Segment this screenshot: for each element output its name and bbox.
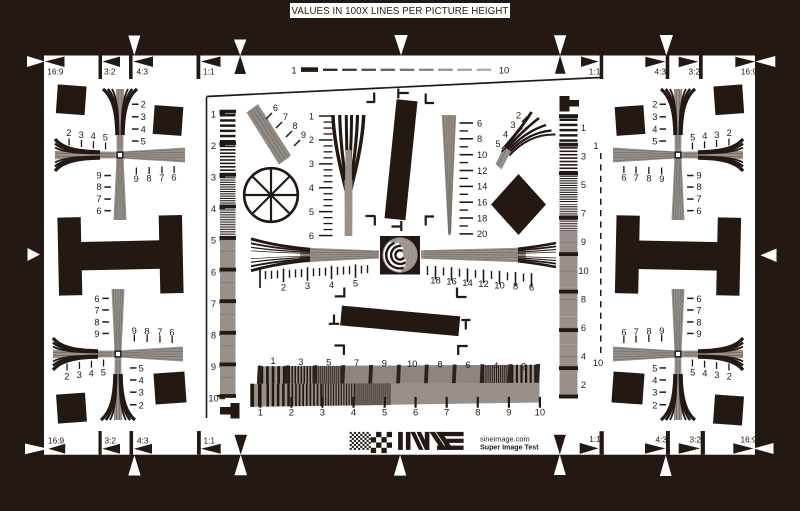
svg-text:8: 8 xyxy=(581,294,586,304)
svg-text:2: 2 xyxy=(289,406,294,417)
svg-text:4: 4 xyxy=(503,129,508,139)
svg-text:8: 8 xyxy=(696,182,701,192)
svg-text:5: 5 xyxy=(382,406,387,417)
svg-text:6: 6 xyxy=(696,294,701,304)
svg-text:3: 3 xyxy=(77,370,82,380)
svg-text:4: 4 xyxy=(702,131,707,141)
svg-text:3: 3 xyxy=(320,406,325,417)
svg-text:7: 7 xyxy=(696,194,701,204)
svg-text:5: 5 xyxy=(495,139,500,149)
svg-text:2: 2 xyxy=(581,380,586,390)
svg-text:7: 7 xyxy=(94,306,99,316)
svg-text:8: 8 xyxy=(477,134,482,144)
svg-text:3: 3 xyxy=(298,356,303,367)
svg-text:7: 7 xyxy=(634,173,639,183)
svg-text:2: 2 xyxy=(516,110,521,120)
svg-text:10: 10 xyxy=(578,266,588,276)
svg-text:9: 9 xyxy=(696,171,701,181)
svg-text:8: 8 xyxy=(96,182,101,192)
svg-text:5: 5 xyxy=(309,207,314,217)
svg-text:5: 5 xyxy=(101,367,106,377)
svg-text:6: 6 xyxy=(465,359,470,370)
svg-text:6: 6 xyxy=(171,172,176,182)
svg-text:5: 5 xyxy=(690,132,695,142)
svg-text:2: 2 xyxy=(727,128,732,138)
svg-text:3: 3 xyxy=(141,112,146,122)
svg-text:14: 14 xyxy=(477,182,487,192)
svg-text:3:2: 3:2 xyxy=(105,435,117,445)
svg-text:16:9: 16:9 xyxy=(741,435,758,445)
svg-text:18: 18 xyxy=(477,213,487,223)
svg-text:7: 7 xyxy=(96,194,101,204)
svg-text:12: 12 xyxy=(477,166,487,176)
svg-text:18: 18 xyxy=(430,276,441,287)
svg-text:3: 3 xyxy=(79,130,84,140)
svg-text:2: 2 xyxy=(652,400,657,410)
svg-text:6: 6 xyxy=(96,206,101,216)
svg-text:5: 5 xyxy=(652,136,657,146)
svg-text:6: 6 xyxy=(94,294,99,304)
svg-text:4: 4 xyxy=(309,183,314,193)
svg-text:3: 3 xyxy=(652,388,657,398)
svg-text:3: 3 xyxy=(305,281,310,292)
svg-text:20: 20 xyxy=(477,229,487,239)
svg-text:7: 7 xyxy=(159,173,164,183)
svg-text:5: 5 xyxy=(326,356,331,367)
svg-text:9: 9 xyxy=(382,358,387,369)
svg-text:5: 5 xyxy=(652,364,657,374)
svg-text:Super Image Test: Super Image Test xyxy=(480,444,539,452)
svg-text:1: 1 xyxy=(581,123,586,133)
svg-text:sineimage.com: sineimage.com xyxy=(480,435,530,444)
svg-text:4: 4 xyxy=(351,406,356,417)
svg-text:5: 5 xyxy=(141,136,146,146)
svg-text:5: 5 xyxy=(353,278,358,289)
svg-text:2: 2 xyxy=(141,100,146,110)
svg-text:2: 2 xyxy=(281,283,286,294)
svg-text:8: 8 xyxy=(292,121,297,131)
svg-text:10: 10 xyxy=(593,358,603,368)
svg-text:16:9: 16:9 xyxy=(48,435,65,445)
svg-text:4:3: 4:3 xyxy=(655,66,667,76)
svg-text:14: 14 xyxy=(462,278,473,289)
svg-text:4: 4 xyxy=(329,280,334,291)
svg-text:2: 2 xyxy=(521,360,526,371)
svg-text:3: 3 xyxy=(714,370,719,380)
svg-text:6: 6 xyxy=(309,231,314,241)
svg-text:16:9: 16:9 xyxy=(741,66,758,76)
svg-text:9: 9 xyxy=(211,362,216,372)
svg-text:7: 7 xyxy=(444,406,449,417)
svg-text:3:2: 3:2 xyxy=(690,435,702,445)
svg-text:1:1: 1:1 xyxy=(203,66,215,76)
svg-text:10: 10 xyxy=(494,280,505,291)
svg-text:1: 1 xyxy=(270,355,275,366)
svg-text:4: 4 xyxy=(652,124,657,134)
svg-text:8: 8 xyxy=(146,173,151,183)
svg-text:4: 4 xyxy=(652,376,657,386)
svg-text:9: 9 xyxy=(696,329,701,339)
svg-text:4:3: 4:3 xyxy=(137,435,149,445)
svg-text:7: 7 xyxy=(283,112,288,122)
svg-text:3:2: 3:2 xyxy=(104,66,116,76)
svg-text:6: 6 xyxy=(273,103,278,113)
svg-text:8: 8 xyxy=(211,331,216,341)
svg-text:1: 1 xyxy=(593,141,598,151)
svg-text:6: 6 xyxy=(621,172,626,182)
svg-text:7: 7 xyxy=(581,209,586,219)
svg-text:5: 5 xyxy=(211,236,216,246)
svg-text:8: 8 xyxy=(646,173,651,183)
svg-text:2: 2 xyxy=(652,100,657,110)
svg-text:1:1: 1:1 xyxy=(589,434,601,444)
svg-text:3: 3 xyxy=(714,130,719,140)
svg-text:3: 3 xyxy=(211,173,216,183)
svg-text:7: 7 xyxy=(211,299,216,309)
svg-text:10: 10 xyxy=(499,66,510,77)
svg-text:6: 6 xyxy=(529,283,534,294)
svg-text:4: 4 xyxy=(89,369,94,379)
svg-text:10: 10 xyxy=(535,406,545,417)
svg-text:1:1: 1:1 xyxy=(589,66,601,76)
svg-text:5: 5 xyxy=(139,364,144,374)
svg-text:6: 6 xyxy=(696,206,701,216)
svg-text:4: 4 xyxy=(702,369,707,379)
svg-text:3: 3 xyxy=(510,120,515,130)
svg-text:16:9: 16:9 xyxy=(47,66,64,76)
svg-text:9: 9 xyxy=(134,174,139,184)
svg-text:4:3: 4:3 xyxy=(137,66,149,76)
svg-text:2: 2 xyxy=(139,400,144,410)
svg-text:7: 7 xyxy=(696,306,701,316)
svg-text:16: 16 xyxy=(446,277,457,288)
svg-text:1:1: 1:1 xyxy=(204,435,216,445)
svg-text:1: 1 xyxy=(291,66,296,77)
svg-text:6: 6 xyxy=(581,323,586,333)
svg-text:9: 9 xyxy=(301,130,306,140)
svg-text:4: 4 xyxy=(139,376,144,386)
svg-text:9: 9 xyxy=(94,329,99,339)
svg-text:1: 1 xyxy=(258,406,263,417)
svg-text:4:3: 4:3 xyxy=(656,435,668,445)
svg-text:5: 5 xyxy=(581,180,586,190)
svg-text:4: 4 xyxy=(91,131,96,141)
svg-text:4: 4 xyxy=(581,352,586,362)
svg-text:5: 5 xyxy=(690,367,695,377)
svg-text:9: 9 xyxy=(659,174,664,184)
svg-text:VALUES IN 100X LINES PER PICTU: VALUES IN 100X LINES PER PICTURE HEIGHT xyxy=(292,6,509,17)
svg-text:8: 8 xyxy=(696,318,701,328)
svg-text:4: 4 xyxy=(141,124,146,134)
svg-text:2: 2 xyxy=(66,128,71,138)
svg-text:16: 16 xyxy=(477,198,487,208)
svg-text:9: 9 xyxy=(96,171,101,181)
svg-text:2: 2 xyxy=(727,372,732,382)
svg-text:9: 9 xyxy=(581,237,586,247)
svg-text:3: 3 xyxy=(139,388,144,398)
svg-text:8: 8 xyxy=(513,282,518,293)
svg-text:8: 8 xyxy=(94,318,99,328)
svg-text:1: 1 xyxy=(309,111,314,121)
svg-text:4: 4 xyxy=(493,360,498,371)
svg-text:6: 6 xyxy=(211,267,216,277)
svg-text:6: 6 xyxy=(413,406,418,417)
svg-text:5: 5 xyxy=(103,132,108,142)
svg-text:2: 2 xyxy=(211,141,216,151)
svg-text:8: 8 xyxy=(475,406,480,417)
svg-text:8: 8 xyxy=(437,359,442,370)
svg-text:3:2: 3:2 xyxy=(689,66,701,76)
svg-text:4: 4 xyxy=(211,204,216,214)
svg-text:2: 2 xyxy=(64,372,69,382)
svg-text:10: 10 xyxy=(407,358,417,369)
svg-text:12: 12 xyxy=(478,279,489,290)
svg-text:3: 3 xyxy=(309,159,314,169)
svg-text:10: 10 xyxy=(477,150,487,160)
svg-text:3: 3 xyxy=(652,112,657,122)
svg-text:7: 7 xyxy=(354,357,359,368)
svg-text:1: 1 xyxy=(211,109,216,119)
svg-text:3: 3 xyxy=(581,151,586,161)
svg-text:9: 9 xyxy=(506,406,511,417)
svg-text:6: 6 xyxy=(477,118,482,128)
svg-text:2: 2 xyxy=(309,135,314,145)
